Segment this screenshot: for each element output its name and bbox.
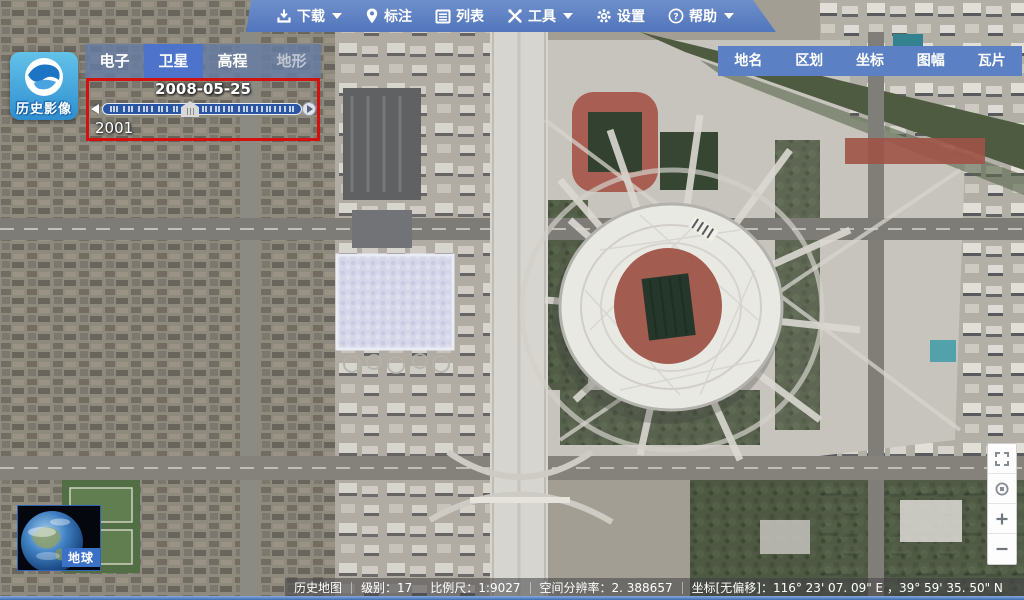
list-button[interactable]: 列表: [435, 6, 484, 26]
map-sheet-button[interactable]: 图幅: [900, 46, 961, 76]
settings-button[interactable]: 设置: [596, 6, 645, 26]
list-icon: [435, 9, 451, 24]
center-view-button[interactable]: [988, 474, 1016, 504]
districts-button[interactable]: 区划: [779, 46, 840, 76]
gear-icon: [596, 8, 612, 24]
timeline-next-arrow[interactable]: [302, 102, 316, 116]
zoom-in-icon: [994, 511, 1010, 527]
layer-tabs: 电子 卫星 高程 地形: [85, 44, 321, 78]
toolbar-item-label: 下载: [297, 6, 325, 26]
overlay-button-bar: 地名 区划 坐标 图幅 瓦片: [718, 46, 1022, 76]
chevron-down-icon: [332, 13, 342, 19]
zoom-out-button[interactable]: [988, 534, 1016, 564]
tiles-button[interactable]: 瓦片: [961, 46, 1022, 76]
status-map-scale: 比例尺：1:9027: [421, 579, 529, 596]
status-zoom-level: 级别：17: [352, 579, 421, 596]
timeline-prev-arrow[interactable]: [91, 104, 99, 114]
tab-electronic-map[interactable]: 电子: [85, 44, 144, 78]
app-window: 下载 标注 列表: [0, 0, 1024, 600]
svg-text:?: ?: [673, 12, 678, 22]
timeline-start-year: 2001: [95, 119, 133, 137]
timeline-track[interactable]: [102, 103, 302, 115]
status-map-name: 历史地图: [285, 579, 351, 596]
help-menu-button[interactable]: ? 帮助: [668, 6, 734, 26]
status-cursor-coordinates: 坐标[无偏移]：116° 23' 07. 09" E ，39° 59' 35. …: [683, 579, 1012, 596]
timeline-highlight-box: 2008-05-25: [86, 78, 320, 141]
help-icon: ?: [668, 8, 684, 24]
globe-view-thumbnail[interactable]: 地球: [17, 505, 101, 571]
tools-menu-button[interactable]: 工具: [507, 6, 573, 26]
chevron-down-icon: [563, 13, 573, 19]
timeline-current-date: 2008-05-25: [89, 80, 317, 98]
download-menu-button[interactable]: 下载: [276, 6, 342, 26]
app-logo: 历史影像: [10, 52, 78, 120]
window-bottom-edge: [0, 596, 1024, 600]
place-names-button[interactable]: 地名: [718, 46, 779, 76]
annotate-button[interactable]: 标注: [365, 6, 412, 26]
fullscreen-button[interactable]: [988, 444, 1016, 474]
zoom-in-button[interactable]: [988, 504, 1016, 534]
toolbar-item-label: 帮助: [689, 6, 717, 26]
status-spatial-resolution: 空间分辨率：2. 388657: [531, 579, 682, 596]
tab-terrain-map[interactable]: 地形: [262, 44, 321, 78]
coordinates-button[interactable]: 坐标: [840, 46, 901, 76]
map-control-panel: [987, 443, 1017, 565]
fullscreen-icon: [994, 451, 1010, 467]
pin-icon: [365, 8, 379, 24]
timeline-slider: [89, 101, 317, 117]
app-logo-label: 历史影像: [10, 98, 78, 117]
zoom-out-icon: [994, 541, 1010, 557]
toolbar-item-label: 工具: [528, 6, 556, 26]
status-bar: 历史地图 级别：17 比例尺：1:9027 空间分辨率：2. 388657 坐标…: [285, 578, 1024, 597]
chevron-down-icon: [724, 13, 734, 19]
toolbar-item-label: 标注: [384, 6, 412, 26]
toolbar-item-label: 列表: [456, 6, 484, 26]
globe-view-label: 地球: [62, 548, 100, 567]
globe-swirl-icon: [20, 55, 68, 103]
top-toolbar: 下载 标注 列表: [246, 0, 776, 32]
tab-elevation-map[interactable]: 高程: [203, 44, 262, 78]
tools-icon: [507, 8, 523, 24]
timeline-tick-marks: [103, 104, 301, 114]
tab-satellite-map[interactable]: 卫星: [144, 44, 203, 78]
center-target-icon: [994, 481, 1010, 497]
toolbar-item-label: 设置: [617, 6, 645, 26]
download-icon: [276, 8, 292, 24]
